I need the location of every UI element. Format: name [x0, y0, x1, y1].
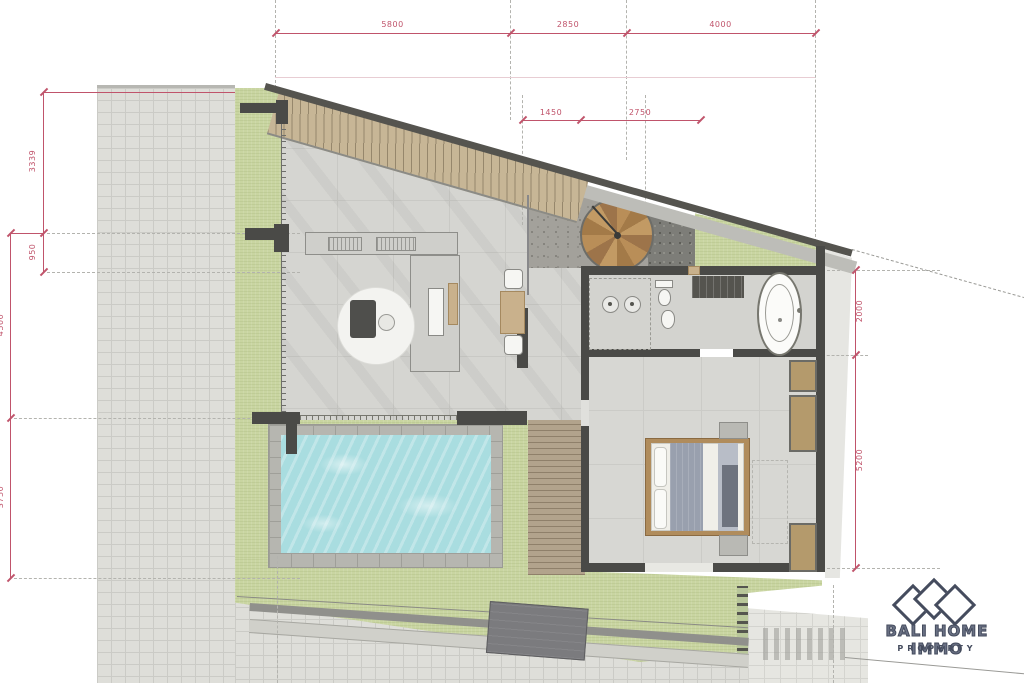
roof-eave-shadow-east	[825, 248, 852, 578]
bath-door-opening	[700, 349, 733, 357]
dim-label-3750: 3750	[0, 475, 6, 519]
west-glazed-wall	[281, 112, 286, 418]
nightstand-bottom	[719, 535, 748, 556]
grid-ref-line	[822, 568, 940, 569]
bed-pillow-bottom	[654, 489, 667, 529]
round-rug	[337, 287, 415, 365]
wardrobe-bottom	[789, 523, 817, 572]
bidet-bowl	[661, 310, 675, 329]
bath-door	[688, 266, 700, 275]
side-table	[378, 314, 395, 331]
dim-label-2850: 2850	[510, 20, 626, 30]
scrub-marks	[763, 628, 851, 660]
armchair	[350, 300, 376, 338]
living-south-wall-west	[252, 412, 300, 424]
dim-line-top	[275, 33, 815, 34]
dim-label-4000: 4000	[626, 20, 815, 30]
grid-ref-line	[14, 578, 300, 579]
grid-ref-line	[822, 355, 868, 356]
dim-line-left-outer-ext	[10, 233, 43, 234]
fin-wall-north	[240, 103, 280, 113]
dim-tick	[812, 29, 820, 37]
shower-mat	[692, 276, 744, 298]
sink-drain-right	[630, 302, 634, 306]
desk-outline	[752, 460, 788, 544]
grid-ref-line	[815, 0, 816, 247]
dim-line-left-inner-ext	[43, 92, 235, 93]
toilet-tank	[655, 280, 673, 288]
dining-table	[500, 291, 525, 334]
toilet-bowl	[658, 289, 671, 306]
pool-water	[281, 435, 491, 553]
paver-path-left	[97, 85, 235, 683]
dim-label-5800: 5800	[275, 20, 510, 30]
wardrobe-top	[789, 360, 817, 392]
deck-door-opening	[581, 400, 589, 426]
dim-label-950: 950	[28, 230, 38, 274]
wardrobe-middle	[789, 395, 817, 452]
grid-ref-line	[277, 556, 278, 683]
sofa-cushion-left	[328, 237, 362, 251]
logo-tagline-text: PROPERTY	[862, 644, 1012, 653]
dim-line-left-inner	[43, 92, 44, 272]
dim-line-mid	[522, 120, 700, 121]
bathtub-faucet	[797, 308, 802, 313]
east-wall	[816, 246, 825, 572]
dim-label-3339: 3339	[28, 139, 38, 183]
living-south-wall-east	[457, 411, 527, 425]
dim-label-2000: 2000	[855, 289, 865, 333]
stair-center-post	[614, 232, 621, 239]
sofa-cushion-right	[376, 237, 416, 251]
bed-pillow-top	[654, 447, 667, 487]
equipment-pad	[486, 601, 589, 661]
sliding-door-track	[300, 415, 457, 420]
fin-wall-mid	[245, 228, 281, 240]
dim-line-left-outer	[10, 233, 11, 578]
pool-pier	[286, 424, 297, 454]
dim-line-top-2	[275, 77, 815, 78]
dim-label-1450: 1450	[522, 108, 580, 118]
dining-chair-top	[504, 269, 523, 289]
drainage-strip	[737, 586, 748, 660]
grid-ref-line	[833, 585, 834, 683]
vanity-counter	[589, 278, 651, 350]
bathtub-drain	[778, 318, 782, 322]
terrace-opening	[645, 563, 713, 572]
floor-plan-canvas: 5800 2850 4000 1450 2750 3339 950 4500 3…	[0, 0, 1024, 683]
bali-home-immo-logo: BALI HOME IMMO PROPERTY	[862, 576, 1012, 666]
nightstand-top	[719, 422, 748, 439]
bed-throw	[722, 465, 738, 527]
kitchen-sink	[428, 288, 444, 336]
bathtub-inner	[765, 284, 794, 342]
site-boundary-diagonal-ne	[852, 249, 1024, 298]
dim-label-4500: 4500	[0, 303, 6, 347]
bed-blanket	[670, 443, 703, 531]
dim-label-5200: 5200	[855, 438, 865, 482]
court-glass-line	[527, 195, 529, 295]
counter-wood-accent	[448, 283, 458, 325]
grid-ref-line	[510, 0, 511, 120]
dining-chair-bottom	[504, 335, 523, 355]
grid-ref-line	[275, 0, 276, 88]
sink-drain-left	[608, 302, 612, 306]
dim-label-2750: 2750	[580, 108, 700, 118]
wood-deck	[528, 420, 585, 575]
grid-ref-line	[47, 272, 300, 273]
